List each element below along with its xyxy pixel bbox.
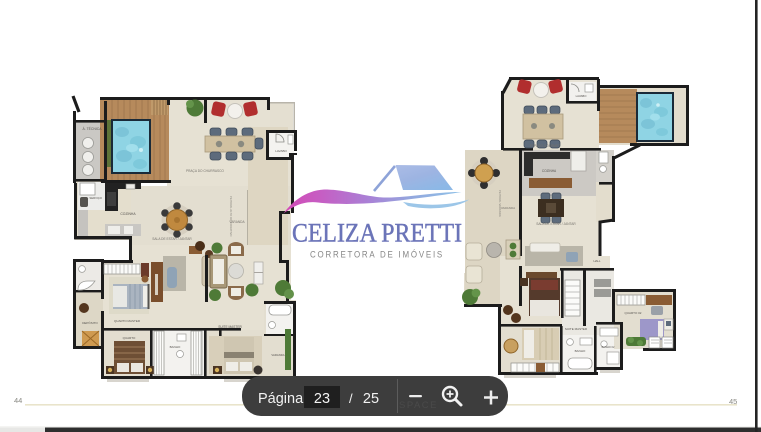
svg-text:BANHO: BANHO: [575, 349, 586, 353]
svg-text:Á. TÉCNICA: Á. TÉCNICA: [83, 126, 103, 131]
svg-text:DEPÓSITO: DEPÓSITO: [82, 320, 98, 325]
svg-text:COZINHA: COZINHA: [120, 212, 136, 216]
svg-text:SALA DE ESTAR / JANTAR: SALA DE ESTAR / JANTAR: [152, 237, 192, 241]
svg-text:PRAÇA DO CHURRASCO: PRAÇA DO CHURRASCO: [186, 169, 224, 173]
svg-text:23: 23: [314, 391, 330, 407]
svg-text:HALL: HALL: [594, 259, 601, 263]
svg-text:SPACE: SPACE: [399, 400, 438, 411]
svg-text:/: /: [349, 391, 353, 406]
svg-text:Página: Página: [258, 391, 304, 407]
svg-text:LAVABO: LAVABO: [275, 149, 287, 153]
svg-text:VARANDA: VARANDA: [501, 206, 515, 210]
svg-text:A. SERVIÇO: A. SERVIÇO: [86, 196, 103, 200]
svg-text:QUARTO MASTER: QUARTO MASTER: [114, 319, 141, 323]
svg-text:QUARTO 02: QUARTO 02: [625, 311, 642, 315]
svg-text:QUARTO: QUARTO: [123, 336, 136, 340]
svg-text:PEITORIL VARANDA: PEITORIL VARANDA: [498, 190, 502, 217]
svg-text:44: 44: [14, 396, 22, 405]
svg-text:BANHO 02: BANHO 02: [602, 345, 615, 349]
svg-text:CELIZA PRETTI: CELIZA PRETTI: [292, 219, 462, 248]
svg-text:ESPAÇO GOURMET: ESPAÇO GOURMET: [530, 144, 560, 148]
svg-text:LAVABO: LAVABO: [576, 94, 588, 98]
svg-text:COZINHA: COZINHA: [542, 169, 557, 173]
svg-text:VARANDA: VARANDA: [271, 353, 284, 357]
svg-text:CORRETORA DE IMÓVEIS: CORRETORA DE IMÓVEIS: [310, 250, 444, 260]
svg-text:PEITORIL ALTO DO CORATIVO: PEITORIL ALTO DO CORATIVO: [229, 196, 233, 237]
svg-text:BANHO: BANHO: [170, 345, 181, 349]
svg-text:SUITE MASTER: SUITE MASTER: [218, 325, 242, 329]
svg-text:25: 25: [363, 391, 379, 407]
svg-text:SALA DE ESTAR / JANTAR: SALA DE ESTAR / JANTAR: [536, 222, 576, 226]
svg-text:SUITE MASTER: SUITE MASTER: [565, 327, 588, 331]
